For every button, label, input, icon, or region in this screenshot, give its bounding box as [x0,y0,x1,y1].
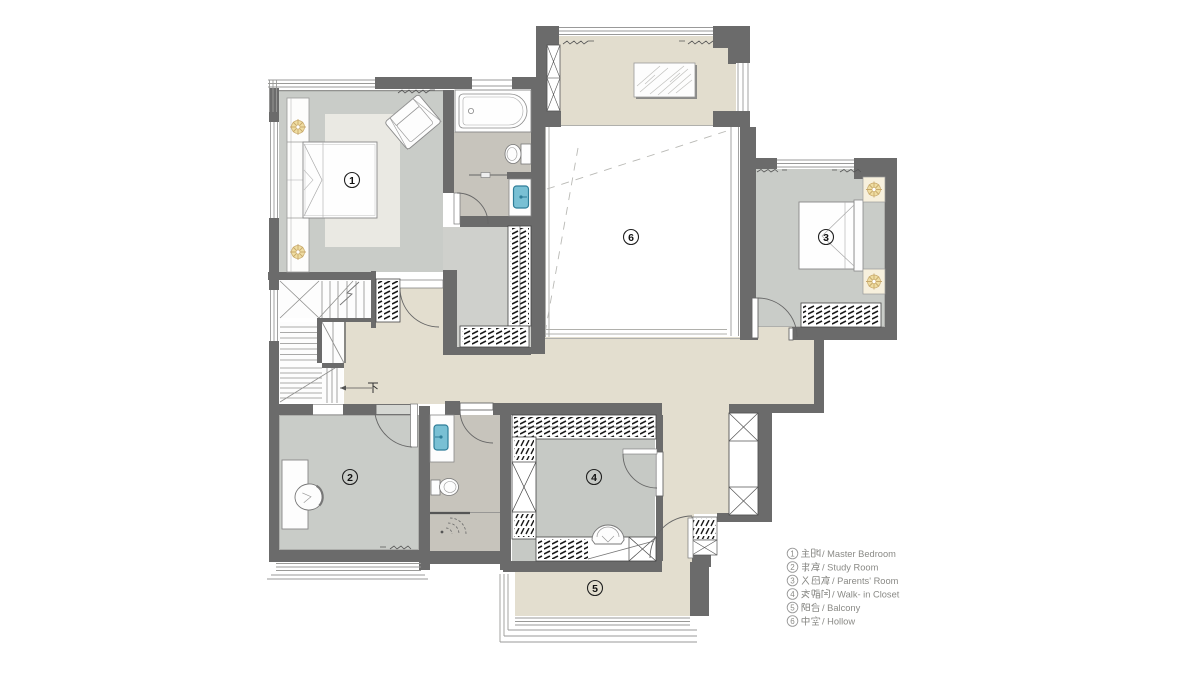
svg-text:/ Master Bedroom: / Master Bedroom [822,549,896,559]
svg-text:4: 4 [591,472,597,484]
svg-text:3: 3 [823,232,829,244]
svg-text:2: 2 [790,563,795,572]
svg-text:/ Hollow: / Hollow [822,617,855,627]
svg-text:3: 3 [790,577,795,586]
svg-text:/ Study Room: / Study Room [822,563,879,573]
svg-text:/ Walk- in Closet: / Walk- in Closet [832,590,900,600]
svg-text:6: 6 [628,232,634,244]
svg-text:1: 1 [349,175,355,187]
svg-text:/ Parents' Room: / Parents' Room [832,576,899,586]
svg-text:5: 5 [790,604,795,613]
svg-text:2: 2 [347,472,353,484]
svg-text:/ Balcony: / Balcony [822,603,861,613]
svg-text:5: 5 [592,583,598,595]
svg-text:4: 4 [790,590,795,599]
svg-text:1: 1 [790,550,795,559]
svg-text:6: 6 [790,617,795,626]
